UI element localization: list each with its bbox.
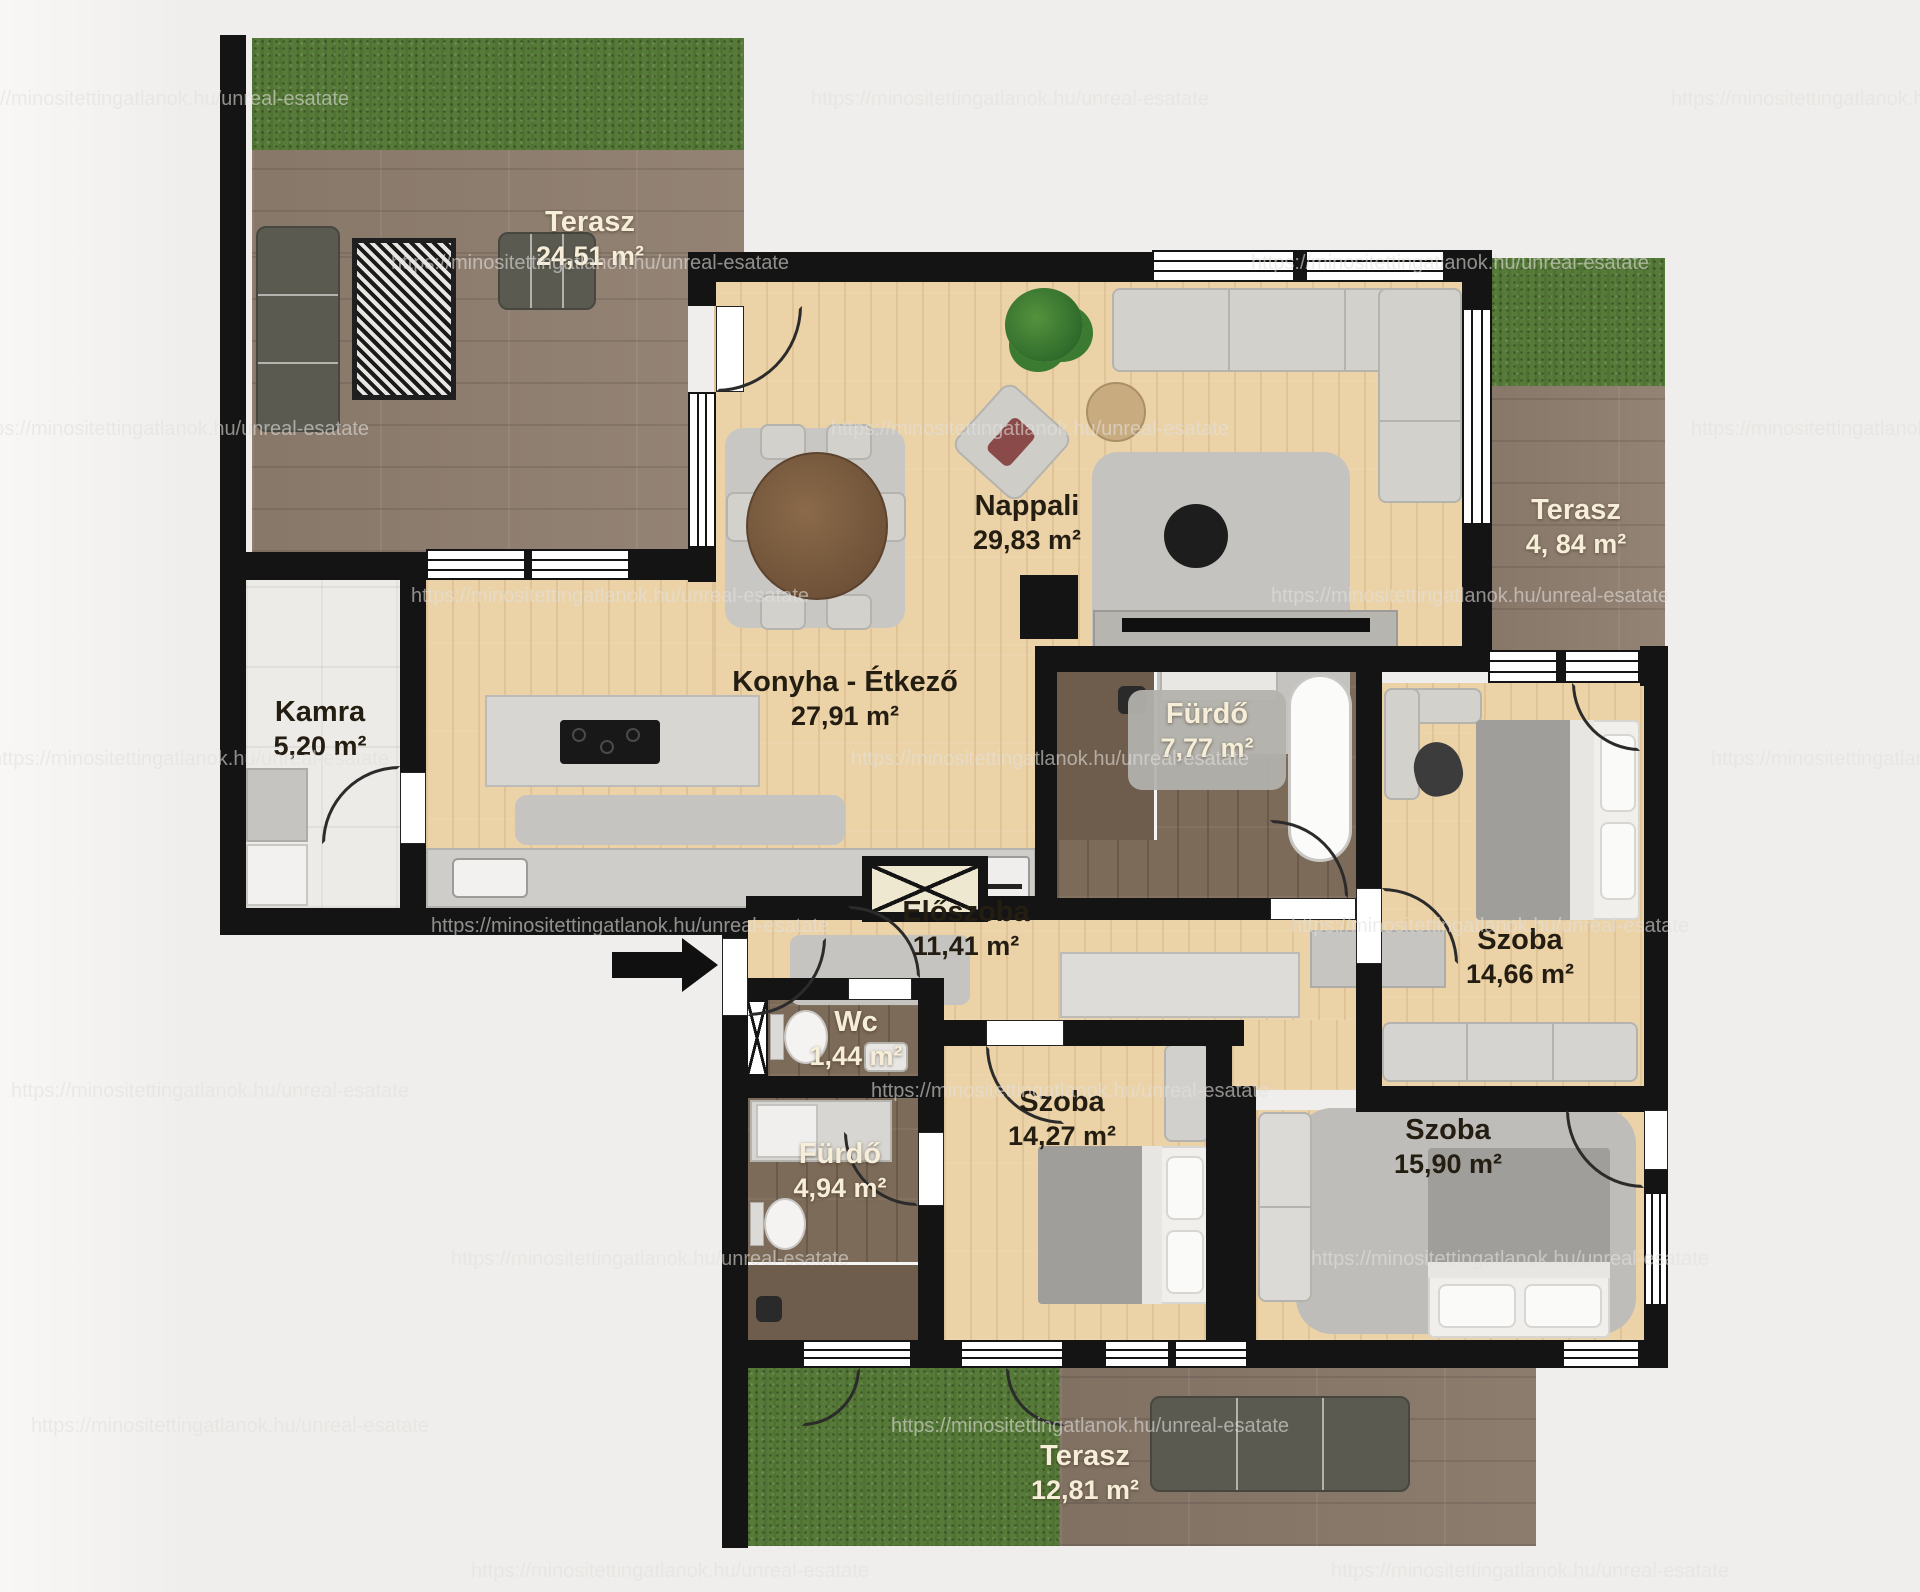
room-label-kamra: Kamra 5,20 m²	[273, 694, 366, 764]
bed-sheet	[1142, 1146, 1162, 1304]
room-label-terasz-bottom: Terasz 12,81 m²	[1031, 1438, 1139, 1508]
tv	[1122, 618, 1370, 632]
room-name: Előszoba	[902, 894, 1029, 930]
room-label-eloszoba: Előszoba 11,41 m²	[902, 894, 1029, 964]
room-area: 1,44 m²	[809, 1040, 902, 1074]
room-area: 5,20 m²	[273, 730, 366, 764]
room-name: Kamra	[273, 694, 366, 730]
room-label-terasz-right: Terasz 4, 84 m²	[1526, 492, 1627, 562]
sofa-seam	[258, 294, 338, 296]
wall-segment	[1248, 1340, 1562, 1368]
room-area: 24,51 m²	[536, 240, 644, 274]
room-area: 29,83 m²	[973, 524, 1081, 558]
floor-hall-stub	[1232, 1020, 1356, 1090]
wardrobe	[1382, 1022, 1638, 1082]
wall-segment	[1644, 686, 1668, 1110]
window	[1644, 1192, 1668, 1306]
window	[960, 1340, 1064, 1368]
coffee-table	[1164, 504, 1228, 568]
room-label-szoba-bottom: Szoba 15,90 m²	[1394, 1112, 1502, 1182]
door-jamb	[1644, 1110, 1668, 1170]
wall-segment	[1445, 250, 1492, 282]
room-label-terasz-topleft: Terasz 24,51 m²	[536, 204, 644, 274]
window-mullion	[1293, 250, 1307, 282]
wall-segment	[1064, 1340, 1104, 1368]
plant	[1005, 288, 1083, 362]
room-label-nappali: Nappali 29,83 m²	[973, 488, 1081, 558]
wall-segment	[736, 1076, 944, 1098]
wall-segment	[1462, 282, 1492, 308]
wall-segment	[220, 35, 246, 935]
toilet-tank	[770, 1014, 784, 1060]
wall-segment	[912, 1340, 960, 1368]
bed-pillow	[1166, 1156, 1204, 1220]
wall-segment	[722, 1340, 802, 1368]
room-area: 4,94 m²	[793, 1172, 886, 1206]
wall-segment	[1230, 1086, 1256, 1342]
wall-segment	[1640, 1340, 1668, 1368]
room-area: 12,81 m²	[1031, 1474, 1139, 1508]
room-area: 15,90 m²	[1394, 1148, 1502, 1182]
bed-pillow	[1166, 1230, 1204, 1294]
door-jamb	[1356, 888, 1382, 964]
window	[688, 392, 716, 548]
window-mullion	[1168, 1340, 1176, 1368]
room-label-furdo-nagy: Fürdő 7,77 m²	[1160, 696, 1253, 766]
wall-segment	[220, 908, 426, 935]
desk-return	[1384, 688, 1420, 800]
dining-table	[746, 452, 888, 600]
door-jamb	[918, 1132, 944, 1206]
room-name: Szoba	[1008, 1084, 1116, 1120]
sofa-seam	[1228, 290, 1230, 370]
pantry-shelf	[246, 768, 308, 842]
wall-segment	[1035, 646, 1492, 672]
sofa-seam	[258, 362, 338, 364]
wall-segment	[630, 549, 690, 580]
window	[1462, 308, 1492, 525]
wall-segment	[1206, 1020, 1232, 1342]
room-name: Szoba	[1466, 922, 1574, 958]
sofa	[256, 226, 340, 432]
cooktop-burner	[572, 728, 586, 742]
room-label-wc: Wc 1,44 m²	[809, 1004, 902, 1074]
bed-sheet	[1428, 1262, 1610, 1278]
wall-segment	[1644, 1170, 1668, 1192]
wall-segment	[688, 548, 716, 582]
window-mullion	[1556, 650, 1566, 683]
pantry-cabinet	[246, 844, 308, 906]
wall-segment	[1356, 1086, 1668, 1112]
sofa-l-shape	[1378, 288, 1462, 503]
room-area: 4, 84 m²	[1526, 528, 1627, 562]
wall-segment	[400, 844, 426, 908]
kitchen-rug	[515, 795, 845, 845]
wall-segment	[1035, 898, 1270, 920]
room-area: 14,66 m²	[1466, 958, 1574, 992]
wall-segment	[1356, 672, 1382, 888]
dining-chair	[760, 594, 806, 630]
rug	[352, 238, 456, 400]
wardrobe-seam	[1260, 1206, 1310, 1208]
room-name: Nappali	[973, 488, 1081, 524]
toilet-tank	[750, 1202, 764, 1246]
door-jamb	[986, 1020, 1064, 1046]
watermark-text: https://minositettingatlanok.hu/unreal-e…	[31, 1415, 429, 1438]
loveseat-seam	[530, 234, 532, 308]
floor-plan: Terasz 24,51 m² Nappali 29,83 m² Konyha …	[0, 0, 1920, 1592]
shower-head	[756, 1296, 782, 1322]
room-area: 7,77 m²	[1160, 732, 1253, 766]
room-name: Terasz	[1031, 1438, 1139, 1474]
wall-segment	[944, 1020, 986, 1046]
room-name: Fürdő	[1160, 696, 1253, 732]
door-jamb	[722, 938, 748, 1016]
grass-right	[1490, 258, 1665, 386]
wall-segment	[918, 1098, 944, 1132]
dining-chair	[826, 594, 872, 630]
terrace-sofa	[1150, 1396, 1410, 1492]
wall-segment	[688, 254, 716, 306]
room-name: Szoba	[1394, 1112, 1502, 1148]
window	[802, 1340, 912, 1368]
room-label-szoba-middle: Szoba 14,27 m²	[1008, 1084, 1116, 1154]
bed-blanket	[1038, 1146, 1148, 1304]
bed-blanket	[1476, 720, 1576, 920]
watermark-text: https://minositettingatlanok.hu/unreal-e…	[1331, 1560, 1729, 1583]
watermark-text: https://minositettingatlanok.hu/unreal-e…	[1711, 748, 1920, 771]
sofa-seam	[1236, 1398, 1238, 1490]
wall-segment	[722, 920, 748, 938]
watermark-text: https://minositettingatlanok.hu/unreal-e…	[811, 88, 1209, 111]
column	[1020, 575, 1078, 639]
wall-segment	[688, 252, 1152, 282]
bed-pillow	[1600, 822, 1636, 900]
door-jamb	[1270, 898, 1356, 920]
room-label-furdo-kis: Fürdő 4,94 m²	[793, 1136, 886, 1206]
wall-segment	[918, 1206, 944, 1342]
wardrobe	[1164, 1044, 1210, 1142]
wall-segment	[400, 580, 426, 772]
room-name: Wc	[809, 1004, 902, 1040]
watermark-text: https://minositettingatlanok.hu/unreal-e…	[1671, 88, 1920, 111]
wall-segment	[244, 552, 426, 580]
bed-pillow	[1524, 1284, 1602, 1328]
watermark-text: https://minositettingatlanok.hu/unreal-e…	[471, 1560, 869, 1583]
watermark-text: https://minositettingatlanok.hu/unreal-e…	[1691, 418, 1920, 441]
room-area: 14,27 m²	[1008, 1120, 1116, 1154]
room-name: Terasz	[536, 204, 644, 240]
wall-segment	[1035, 672, 1057, 920]
room-name: Fürdő	[793, 1136, 886, 1172]
wardrobe-seam	[1466, 1024, 1468, 1080]
sofa-seam	[1344, 290, 1346, 370]
room-label-konyha: Konyha - Étkező 27,91 m²	[732, 664, 958, 734]
room-area: 11,41 m²	[902, 930, 1029, 964]
room-area: 27,91 m²	[732, 700, 958, 734]
wall-segment	[1356, 964, 1382, 1086]
wall-segment	[426, 908, 748, 935]
bed-sheet	[1570, 720, 1594, 920]
grass-top-left	[252, 38, 744, 150]
window	[1562, 1340, 1640, 1368]
sofa-seam	[1322, 1398, 1324, 1490]
wall-segment	[1640, 646, 1668, 686]
wardrobe-seam	[1552, 1024, 1554, 1080]
kitchen-sink	[452, 858, 528, 898]
door-jamb	[400, 772, 426, 844]
hall-closet	[1060, 952, 1300, 1018]
cooktop-burner	[626, 728, 640, 742]
window-mullion	[524, 549, 532, 580]
door-jamb	[848, 978, 912, 1000]
room-label-szoba-right: Szoba 14,66 m²	[1466, 922, 1574, 992]
watermark-text: https://minositettingatlanok.hu/unreal-e…	[11, 1080, 409, 1103]
room-name: Konyha - Étkező	[732, 664, 958, 700]
bed-pillow	[1438, 1284, 1516, 1328]
window	[1104, 1340, 1248, 1368]
cooktop-burner	[600, 740, 614, 754]
room-name: Terasz	[1526, 492, 1627, 528]
side-table	[1086, 382, 1146, 442]
sofa-seam	[1380, 420, 1460, 422]
